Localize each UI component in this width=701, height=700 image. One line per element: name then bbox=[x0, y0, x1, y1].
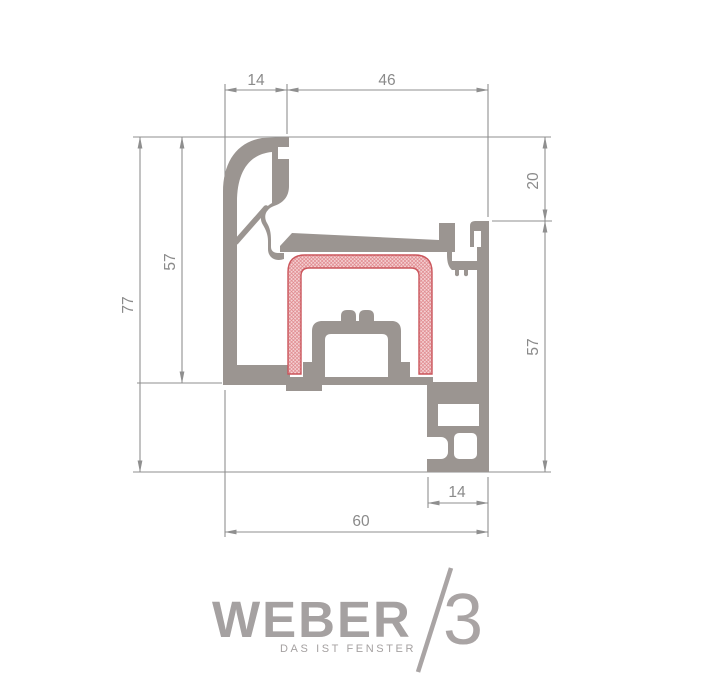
lower-block-cavity-2 bbox=[454, 433, 477, 459]
dim-label-top-right: 46 bbox=[378, 72, 395, 89]
frame-strut bbox=[236, 208, 266, 242]
frame-horn bbox=[223, 137, 289, 385]
dim-label-left-inner: 57 bbox=[162, 253, 179, 270]
logo-brand-text: WEBER bbox=[212, 591, 412, 648]
dim-label-top-left: 14 bbox=[247, 72, 265, 89]
logo: WEBER 3 DAS IST FENSTER bbox=[212, 568, 483, 672]
logo-series-number: 3 bbox=[443, 580, 483, 660]
lower-hook-pocket bbox=[420, 437, 448, 459]
technical-drawing-page: 14 46 20 57 77 57 14 60 bbox=[0, 0, 701, 700]
dim-label-bottom-inner: 14 bbox=[448, 484, 466, 501]
dim-label-right-upper: 20 bbox=[525, 172, 542, 190]
centre-hat-cavity bbox=[325, 334, 388, 377]
dim-label-bottom-total: 60 bbox=[352, 513, 370, 530]
track-cap-slot bbox=[474, 231, 481, 247]
dim-label-left-outer: 77 bbox=[120, 296, 137, 313]
aluminium-profile bbox=[223, 137, 489, 472]
sash-top-bar bbox=[280, 223, 455, 252]
dimension-lines bbox=[133, 84, 552, 537]
logo-tagline: DAS IST FENSTER bbox=[280, 643, 416, 655]
dim-label-right-lower: 57 bbox=[525, 338, 542, 355]
clip-shelf bbox=[447, 252, 481, 276]
lower-block-cavity bbox=[438, 404, 479, 426]
profile-drawing-svg: 14 46 20 57 77 57 14 60 bbox=[0, 0, 701, 700]
